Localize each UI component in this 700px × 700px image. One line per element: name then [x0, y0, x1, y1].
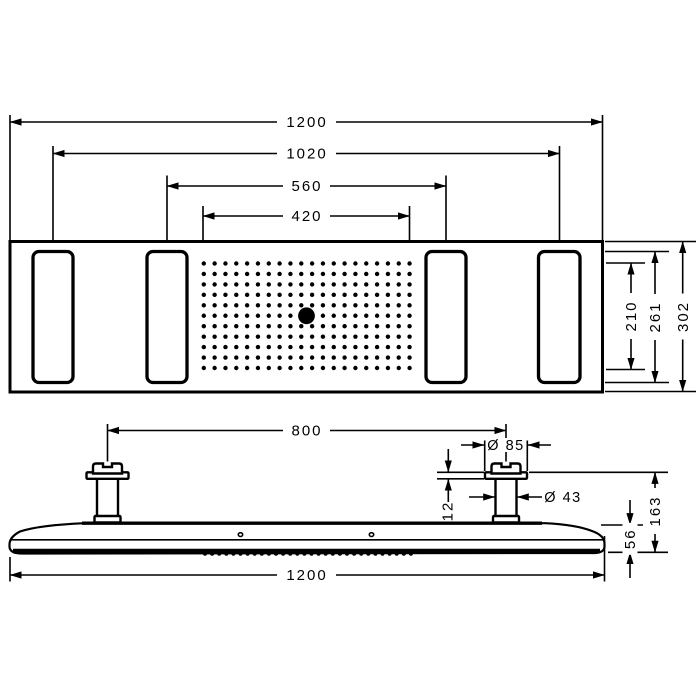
pipe-column — [97, 479, 118, 518]
pipe-base-ring — [95, 516, 121, 523]
dim-label-nozzle-field-depth: 210 — [623, 300, 640, 331]
technical-drawing: 1200 1020 560 420 210 — [0, 0, 700, 700]
dim-outer-zone-spacing: 1020 — [53, 146, 560, 163]
dim-panel-thickness: 56 — [601, 500, 643, 578]
side-hole-left — [238, 533, 242, 537]
dim-label-install-height: 163 — [647, 495, 664, 526]
dim-label-outer-zone-spacing: 1020 — [286, 146, 327, 163]
spray-zone-rect-2 — [147, 252, 187, 383]
dim-label-inner-zone-spacing: 560 — [291, 178, 322, 195]
dim-panel-depth: 302 — [675, 242, 692, 392]
supply-pipe-right — [485, 464, 527, 523]
dim-overall-width-top: 1200 — [10, 114, 603, 131]
pipe-cap — [492, 464, 521, 474]
dim-label-zone-depth: 261 — [647, 301, 664, 332]
dim-label-pipe-diameter: Ø 43 — [544, 490, 581, 506]
side-hole-right — [369, 533, 373, 537]
pipe-cap — [93, 464, 122, 474]
supply-pipe-left — [87, 464, 129, 523]
spray-zone-rect-3 — [426, 252, 466, 383]
top-right-dimensions: 210 261 302 — [605, 242, 696, 392]
dim-label-overall-width-bottom: 1200 — [286, 567, 327, 584]
dim-label-overall-width-top: 1200 — [286, 114, 327, 131]
dim-label-panel-depth: 302 — [675, 301, 692, 332]
dim-flange-height: 12 — [437, 449, 484, 521]
dim-nozzle-field-width: 420 — [203, 208, 410, 225]
dim-label-flange-height: 12 — [440, 501, 457, 522]
side-view — [10, 464, 605, 556]
center-nozzle — [298, 307, 315, 324]
top-dimensions: 1200 1020 560 420 — [10, 114, 603, 240]
dim-label-flange-diameter: Ø 85 — [487, 438, 524, 454]
dim-pipe-spacing: 800 — [108, 423, 507, 462]
dim-label-pipe-spacing: 800 — [291, 423, 322, 440]
spray-zone-rect-1 — [33, 252, 73, 383]
pipe-base-ring — [493, 516, 519, 523]
spray-zone-rect-4 — [539, 252, 581, 383]
dim-label-panel-thickness: 56 — [622, 528, 639, 549]
dim-zone-depth: 261 — [647, 252, 664, 383]
dim-pipe-diameter: Ø 43 — [469, 490, 582, 506]
dim-inner-zone-spacing: 560 — [167, 178, 446, 195]
dim-label-nozzle-field-width: 420 — [291, 208, 322, 225]
top-view — [10, 242, 603, 393]
pipe-column — [496, 479, 517, 518]
dim-nozzle-field-depth: 210 — [623, 263, 640, 370]
